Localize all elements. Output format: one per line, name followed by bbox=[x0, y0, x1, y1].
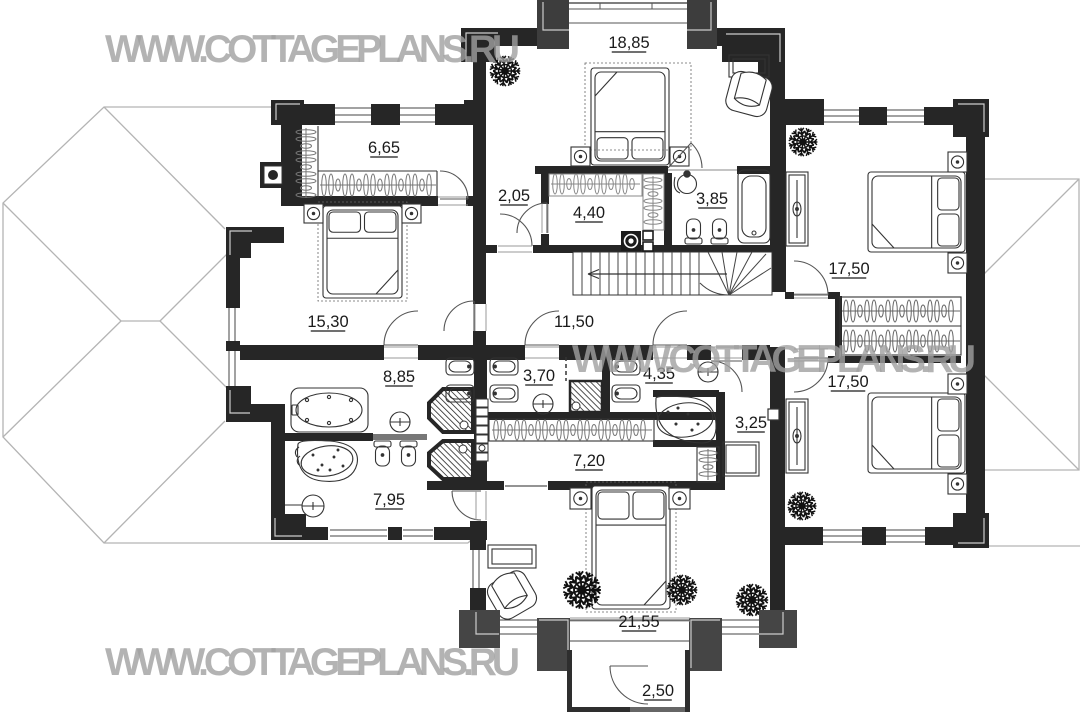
svg-text:7,20: 7,20 bbox=[573, 452, 605, 470]
svg-text:6,65: 6,65 bbox=[368, 139, 400, 157]
svg-text:3,25: 3,25 bbox=[735, 414, 767, 432]
svg-text:3,70: 3,70 bbox=[523, 367, 555, 385]
svg-text:17,50: 17,50 bbox=[828, 260, 869, 278]
svg-text:4,40: 4,40 bbox=[573, 204, 605, 222]
svg-text:15,30: 15,30 bbox=[307, 313, 348, 331]
svg-text:2,50: 2,50 bbox=[642, 682, 674, 700]
svg-text:18,85: 18,85 bbox=[608, 34, 649, 52]
svg-text:WWW.COTTAGEPLANS.RU: WWW.COTTAGEPLANS.RU bbox=[105, 28, 520, 71]
svg-text:3,85: 3,85 bbox=[696, 190, 728, 208]
svg-text:2,05: 2,05 bbox=[498, 187, 530, 205]
svg-text:7,95: 7,95 bbox=[373, 491, 405, 509]
svg-text:WWW.COTTAGEPLANS.RU: WWW.COTTAGEPLANS.RU bbox=[572, 338, 976, 381]
svg-text:21,55: 21,55 bbox=[618, 613, 659, 631]
svg-text:WWW.COTTAGEPLANS.RU: WWW.COTTAGEPLANS.RU bbox=[105, 641, 520, 684]
svg-text:11,50: 11,50 bbox=[554, 313, 594, 331]
svg-text:8,85: 8,85 bbox=[383, 368, 415, 386]
